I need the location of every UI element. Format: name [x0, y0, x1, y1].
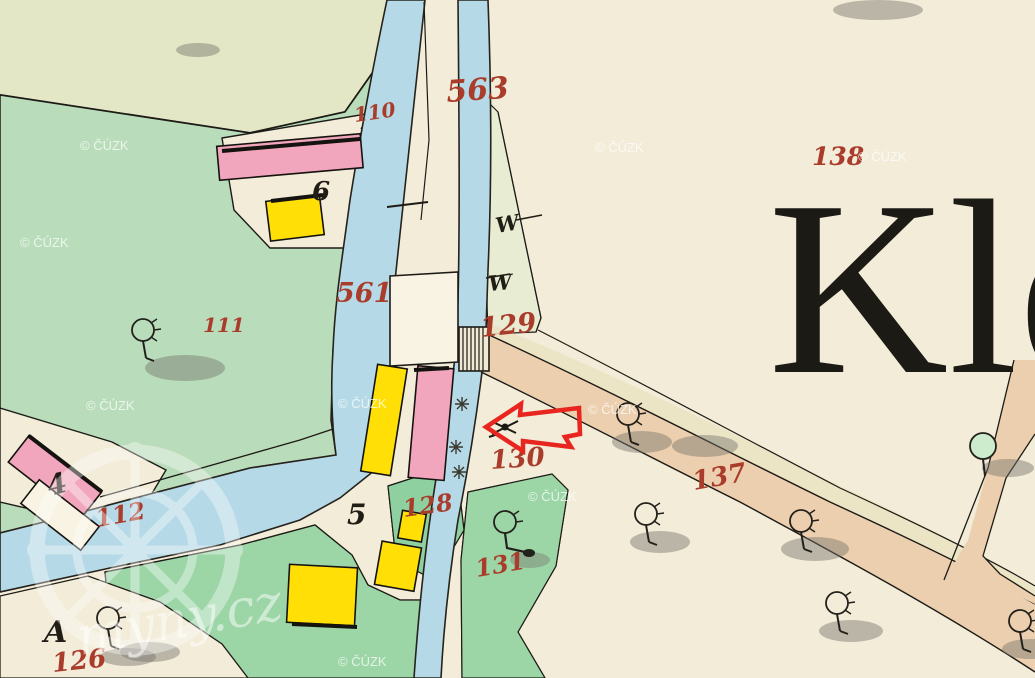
house-number-5: 5	[347, 498, 366, 531]
place-name-label: Kle	[768, 150, 1035, 427]
cuzk-watermark: © ČÚZK	[528, 489, 577, 504]
parcel-number-138: 138	[812, 142, 864, 171]
house-number-6: 6	[312, 177, 330, 207]
cuzk-watermark: © ČÚZK	[80, 138, 129, 153]
historical-cadastral-map: Kle 110 563 138 111 561 129 130 112 128 …	[0, 0, 1035, 678]
cuzk-watermark: © ČÚZK	[595, 140, 644, 155]
building-yellow-bottom	[287, 564, 358, 625]
building-farmyard-white	[390, 272, 458, 366]
map-canvas: Kle 110 563 138 111 561 129 130 112 128 …	[0, 0, 1035, 678]
parcel-number-563: 563	[445, 71, 510, 110]
cuzk-watermark: © ČÚZK	[338, 396, 387, 411]
cuzk-watermark: © ČÚZK	[588, 402, 637, 417]
cuzk-watermark: © ČÚZK	[338, 654, 387, 669]
building-yellow-small-b	[374, 541, 421, 591]
parcel-number-129: 129	[478, 307, 538, 344]
cuzk-watermark: © ČÚZK	[20, 235, 69, 250]
cuzk-watermark: © ČÚZK	[86, 398, 135, 413]
parcel-number-561: 561	[336, 278, 392, 309]
parcel-number-111: 111	[203, 313, 245, 337]
cuzk-watermark: © ČÚZK	[858, 149, 907, 164]
